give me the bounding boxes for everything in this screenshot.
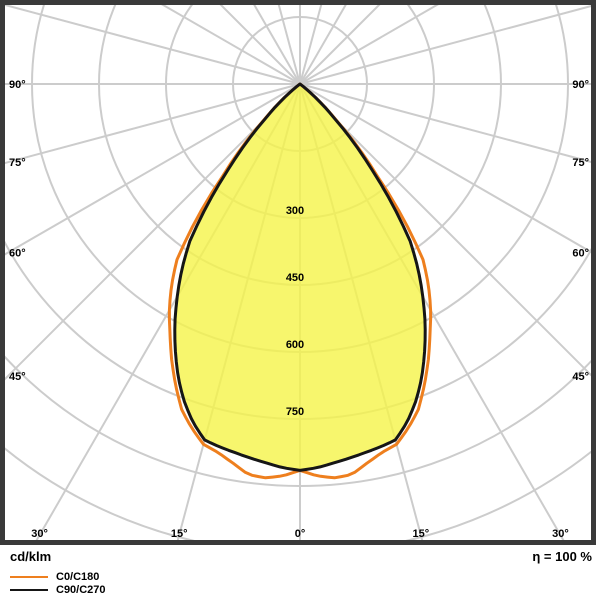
angle-label-bottom-left-30: 30° xyxy=(31,528,48,540)
angle-label-bottom-left-15: 15° xyxy=(171,528,188,540)
angle-label-bottom-right-30: 30° xyxy=(552,528,569,540)
angle-label-right-45: 45° xyxy=(572,371,589,383)
legend-line-c0-c180-icon xyxy=(10,576,48,578)
angle-label-right-75: 75° xyxy=(572,157,589,169)
legend-item-c90-c270: C90/C270 xyxy=(10,584,106,596)
ring-label-450: 450 xyxy=(286,272,304,284)
ring-label-300: 300 xyxy=(286,205,304,217)
unit-label: cd/klm xyxy=(10,549,51,564)
angle-label-bottom-right-15: 15° xyxy=(412,528,429,540)
photometric-diagram-page: 90°90°75°75°60°60°45°45°0°15°15°30°30°30… xyxy=(0,0,600,600)
angle-label-left-60: 60° xyxy=(9,248,26,260)
angle-label-left-90: 90° xyxy=(9,79,26,91)
legend-item-c0-c180: C0/C180 xyxy=(10,571,106,583)
legend: C0/C180 C90/C270 xyxy=(10,571,106,597)
grid-radial-255 xyxy=(0,0,300,84)
polar-intensity-chart: 90°90°75°75°60°60°45°45°0°15°15°30°30°30… xyxy=(0,0,600,546)
ring-label-600: 600 xyxy=(286,339,304,351)
angle-label-right-60: 60° xyxy=(572,248,589,260)
efficiency-label: η = 100 % xyxy=(532,549,592,564)
chart-footer: cd/klm η = 100 % C0/C180 C90/C270 xyxy=(0,546,600,600)
legend-line-c90-c270-icon xyxy=(10,589,48,591)
ring-label-750: 750 xyxy=(286,406,304,418)
angle-label-right-90: 90° xyxy=(572,79,589,91)
angle-label-bottom-left-0: 0° xyxy=(295,528,306,540)
grid-radial-105 xyxy=(300,0,600,84)
angle-label-left-75: 75° xyxy=(9,157,26,169)
legend-label-c90-c270: C90/C270 xyxy=(56,584,106,596)
legend-label-c0-c180: C0/C180 xyxy=(56,571,99,583)
angle-label-left-45: 45° xyxy=(9,371,26,383)
